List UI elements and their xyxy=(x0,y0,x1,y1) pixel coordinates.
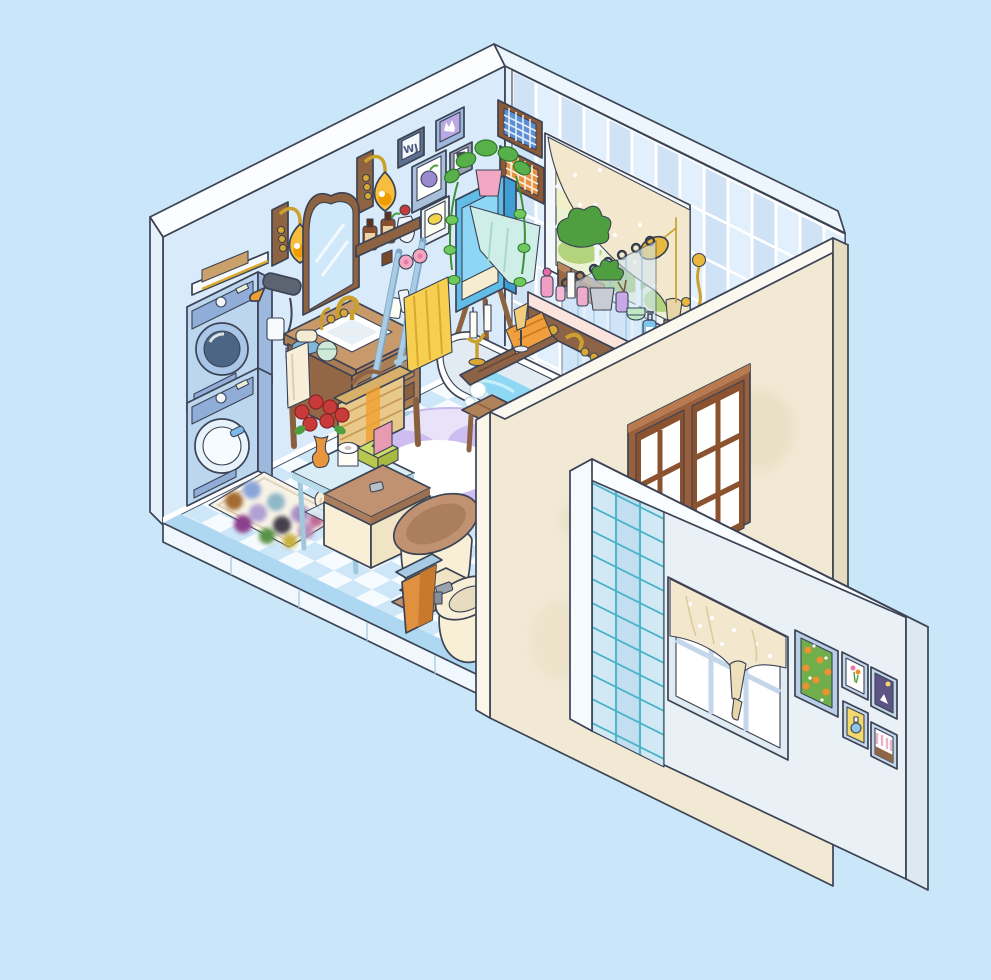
dryer-knob[interactable] xyxy=(216,297,226,307)
display-wall-left-edge xyxy=(570,459,592,731)
power-outlet[interactable] xyxy=(267,318,284,340)
cream-wall-left-edge xyxy=(476,412,490,718)
washer-knob[interactable] xyxy=(216,393,226,403)
cream-wall-right-edge xyxy=(833,238,848,625)
washer-door[interactable] xyxy=(195,419,249,473)
left-wall-end-face xyxy=(150,217,163,525)
display-wall-right-edge xyxy=(906,616,928,890)
shower-knob xyxy=(682,298,691,307)
hand-shower xyxy=(693,254,706,267)
toilet-paper-roll xyxy=(338,443,358,467)
bathroom-illustration: WJ xyxy=(0,0,991,980)
dryer-door[interactable] xyxy=(196,323,248,375)
hand-towel xyxy=(286,342,310,408)
